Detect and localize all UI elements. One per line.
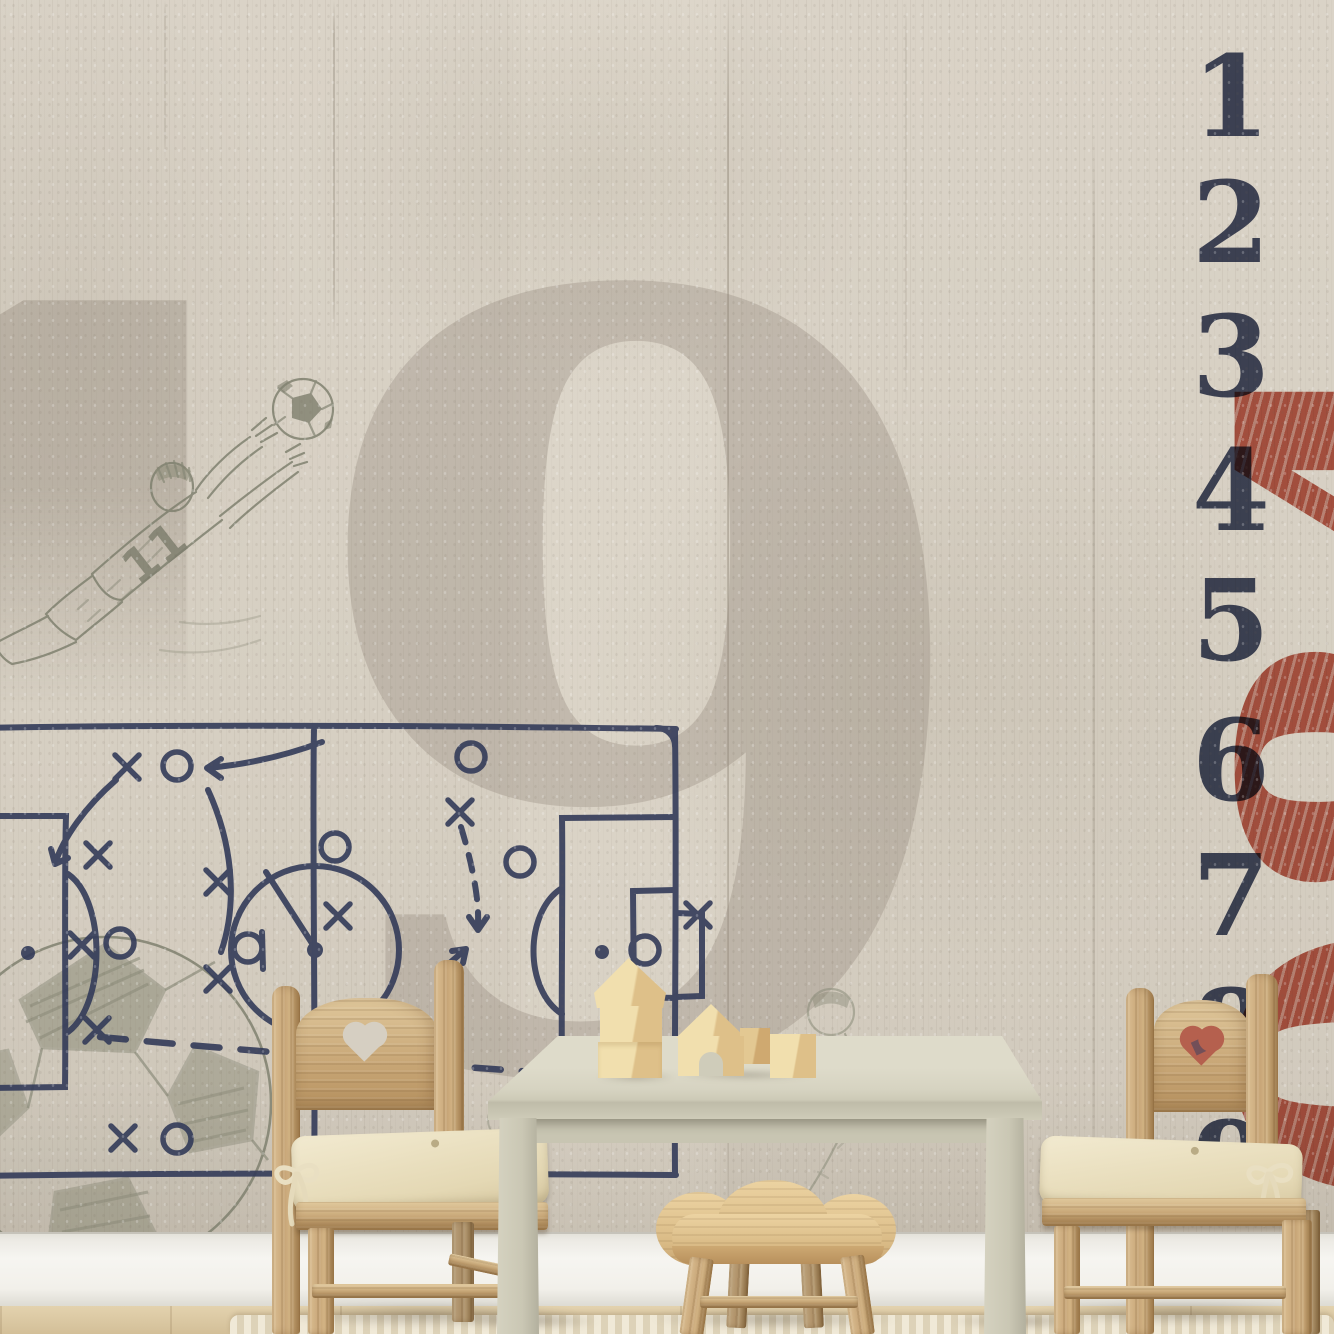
stool-leg bbox=[726, 1253, 750, 1328]
chair-right-leg bbox=[1054, 1226, 1080, 1334]
chair-right-leg bbox=[1282, 1220, 1312, 1334]
table-leg bbox=[497, 1118, 539, 1334]
chair-right-stretcher bbox=[1064, 1286, 1286, 1299]
block-house-cube bbox=[598, 1042, 662, 1078]
chair-left-leg bbox=[452, 1222, 474, 1322]
chair-left-leg bbox=[308, 1228, 334, 1334]
table-leg bbox=[984, 1118, 1026, 1334]
heart-cutout bbox=[347, 1026, 382, 1061]
cushion-button bbox=[431, 1139, 439, 1147]
block-arch bbox=[678, 1036, 744, 1076]
column-digit-5: 5 bbox=[1192, 566, 1264, 678]
chair-right-back-panel bbox=[1154, 1000, 1250, 1112]
playroom-photo: 1 9 11 bbox=[0, 0, 1334, 1334]
column-digit-7: 7 bbox=[1192, 841, 1264, 953]
cushion-button bbox=[1191, 1147, 1199, 1155]
chair-left-stretcher bbox=[312, 1284, 508, 1298]
heart-cutout bbox=[1184, 1030, 1219, 1065]
table-apron bbox=[514, 1119, 1016, 1143]
column-digit-2: 2 bbox=[1192, 168, 1264, 280]
block-cube-small bbox=[740, 1028, 770, 1064]
block-house-cube bbox=[600, 1006, 662, 1044]
heart-cutout-pattern bbox=[1191, 1038, 1208, 1056]
chair-right-seat bbox=[1042, 1198, 1306, 1226]
chair-left-back-panel bbox=[296, 998, 438, 1110]
stool-stretcher bbox=[700, 1296, 858, 1308]
column-digit-3: 3 bbox=[1192, 302, 1264, 414]
block-cube bbox=[770, 1034, 816, 1078]
arch-opening bbox=[699, 1052, 723, 1076]
wall-seam bbox=[1093, 130, 1095, 1232]
column-digit-4: 4 bbox=[1192, 436, 1264, 548]
wall-seam bbox=[164, 0, 166, 160]
column-digit-1: 1 bbox=[1192, 42, 1264, 154]
column-digit-6: 6 bbox=[1192, 706, 1264, 818]
